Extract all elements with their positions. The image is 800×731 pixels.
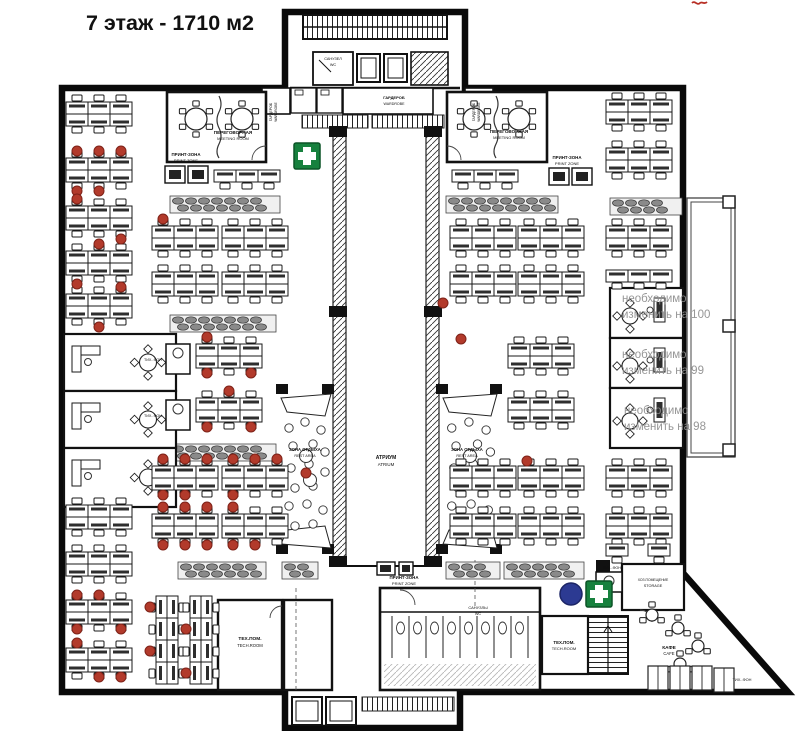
room-label: PRINT ZONE xyxy=(555,161,579,166)
revision-annotation: изменить на 100 xyxy=(622,309,710,321)
floor-plan-drawing: 7 этаж - 1710 м2 xyxy=(0,0,800,731)
room-label: ЗОНА ОТДЫХА xyxy=(289,447,321,452)
room-label: TECH.ROOM xyxy=(237,643,263,648)
room-label: ТИХ.-ФОН xyxy=(144,414,162,418)
room-label: ГАРДЕРОБ xyxy=(383,95,405,100)
room-label: CAFE xyxy=(663,651,674,656)
room-label: ПЕРЕГОВОРНАЯ xyxy=(490,129,528,134)
room-label: TECH.ROOM xyxy=(552,646,576,651)
room-label: PRINT ZONE xyxy=(392,581,416,586)
room-label: ПРИНТ-ЗОНА xyxy=(171,152,201,157)
floor-plan-page: 7 этаж - 1710 м2 xyxy=(0,0,800,731)
shaft-room xyxy=(284,600,332,690)
room-label: САНУЗЕЛ xyxy=(324,57,342,61)
revision-annotation: необходимо xyxy=(622,349,687,361)
room-label: REST AREA xyxy=(456,454,478,458)
room-label: MEETING ROOM xyxy=(217,136,249,141)
blue-dot-marker xyxy=(560,583,582,605)
room-label: ХОЗ.ПОМЕЩЕНИЕ xyxy=(638,578,669,582)
room-label: ATRIUM xyxy=(378,462,395,467)
room-label: ГАРДЕРОБ xyxy=(269,102,273,121)
room-label: ПРИНТ-ЗОНА xyxy=(552,155,582,160)
room-label: WARDROBE xyxy=(477,102,481,122)
room-label: WC xyxy=(330,63,337,67)
revision-annotation: необходимо xyxy=(622,293,687,305)
first-aid-cross-icon xyxy=(586,581,612,607)
wardrobe-center xyxy=(343,88,433,114)
room-label: WC xyxy=(475,612,482,616)
room-label: STORAGE xyxy=(644,584,663,588)
room-label: MEETING ROOM xyxy=(493,135,525,140)
room-label: WARDROBE xyxy=(383,102,405,106)
room-label: ТЕХ.ПОМ. xyxy=(238,636,261,642)
room-label: ТЕХ.ПОМ. xyxy=(553,640,574,645)
room-label: АТРИУМ xyxy=(376,455,397,461)
revision-annotation: необходимо xyxy=(624,405,689,417)
revision-annotation: изменить на 98 xyxy=(624,421,706,433)
room-label: ПРИНТ-ЗОНА xyxy=(389,575,419,580)
page-title: 7 этаж - 1710 м2 xyxy=(86,11,254,35)
room-label: PRINT ZONE xyxy=(174,158,198,163)
tech-room-center xyxy=(542,616,588,674)
room-label: ЗОНА ОТДЫХА xyxy=(451,447,483,452)
room-label: ТИХ.-ФОН xyxy=(144,358,162,362)
room-label: ТИХ.-ФОН xyxy=(733,677,752,682)
first-aid-cross-icon xyxy=(294,143,320,169)
room-label: ТИХ.-ФОН xyxy=(603,566,621,570)
room-label: ГАРДЕРОБ xyxy=(472,102,476,121)
room-label: WARDROBE xyxy=(274,102,278,122)
revision-annotation: изменить на 99 xyxy=(622,365,704,377)
room-label: ПЕРЕГОВОРНАЯ xyxy=(214,130,252,135)
room-label: САНУЗЛЫ xyxy=(468,605,488,610)
room-label: REST AREA xyxy=(294,454,316,458)
